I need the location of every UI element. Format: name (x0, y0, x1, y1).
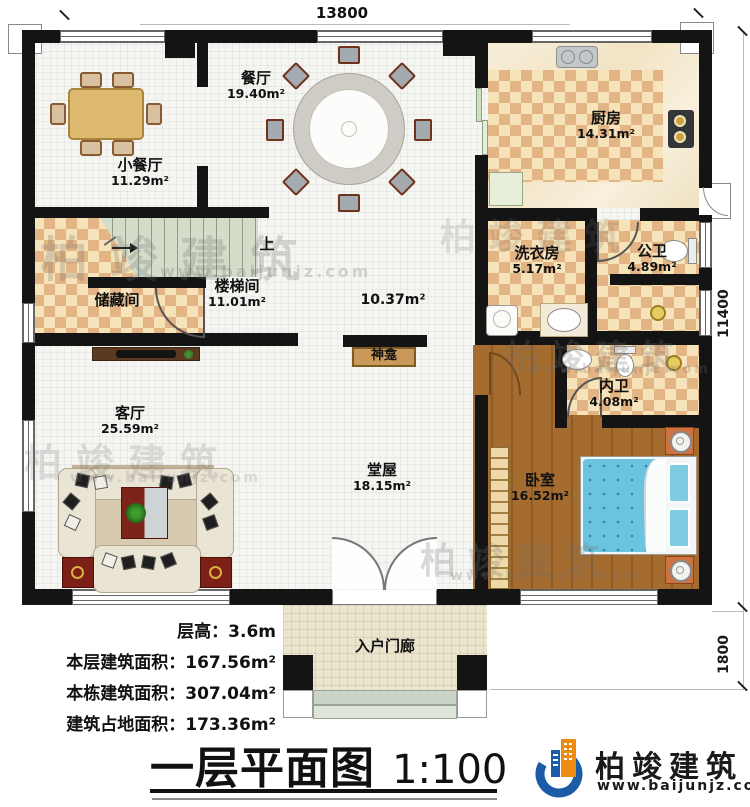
porch-column-base-right (457, 690, 487, 718)
window-left-storage (22, 303, 35, 343)
sliding-door-kitchen-b (482, 120, 488, 155)
dimension-ext-line (490, 689, 744, 690)
wall-dining-small-bottom (32, 207, 269, 218)
dimension-ext-line (712, 611, 744, 612)
wall-public-bath-inner (610, 274, 699, 285)
plan-title: 一层平面图 1:100 (150, 732, 507, 796)
wall-storage-bottom (22, 333, 298, 346)
dimension-top: 13800 (310, 4, 374, 22)
room-label-dining: 餐厅 19.40m² (227, 70, 285, 101)
info-building-area: 本栋建筑面积：307.04m² (0, 679, 276, 710)
wall-kitchen-left-top (475, 43, 488, 88)
watermark-url: www.baijunjz.com (450, 568, 641, 584)
room-label-hallway: 10.37m² (360, 293, 425, 309)
info-block: 层高：3.6m 本层建筑面积：167.56m² 本栋建筑面积：307.04m² … (0, 617, 276, 741)
chair (338, 194, 360, 212)
room-label-storage: 储藏间 (94, 292, 139, 309)
washing-machine-drum (493, 310, 511, 328)
shower-head (650, 305, 666, 321)
sliding-door-kitchen-a (476, 88, 482, 122)
window-top-dining (317, 30, 443, 43)
wall-inner-bath-bottom-stub (555, 415, 567, 428)
porch-step-2 (313, 705, 457, 719)
plant (126, 503, 146, 523)
chair (50, 103, 66, 125)
dimension-porch-line (743, 610, 744, 690)
window-right-bath-2 (699, 290, 712, 336)
room-label-porch: 入户门廊 (355, 638, 415, 655)
brand-website: www.baijunjz.com (597, 778, 750, 794)
dimension-tick (59, 10, 70, 21)
bed-blanket-fold (644, 459, 666, 552)
kitchen-sink-bowl (579, 50, 593, 64)
brand-logo-icon (533, 736, 591, 800)
stove-burner (674, 115, 686, 127)
dimension-top-line (140, 24, 570, 25)
room-label-hall: 堂屋 18.15m² (353, 462, 411, 493)
room-label-laundry: 洗衣房 5.17m² (512, 245, 561, 276)
chair (414, 119, 432, 141)
room-label-dining-small: 小餐厅 11.29m² (111, 157, 169, 188)
window-top-kitchen (532, 30, 652, 43)
pillow (668, 463, 690, 503)
plant-small (184, 350, 193, 359)
kitchen-rug (488, 70, 663, 182)
room-label-kitchen: 厨房 14.31m² (577, 110, 635, 141)
lamp (670, 431, 692, 453)
pillow (668, 508, 690, 548)
title-underline-thin (152, 798, 497, 800)
toilet-public (688, 238, 697, 264)
dining-small-table (68, 88, 144, 140)
chair (112, 140, 134, 156)
porch-column-left (283, 655, 313, 690)
laundry-sink (547, 308, 581, 332)
stove-burner (674, 131, 686, 143)
dimension-right: 11400 (716, 268, 732, 338)
watermark-url: www.baijunjz.com (530, 362, 711, 377)
title-underline (150, 789, 497, 793)
chair (146, 103, 162, 125)
chair (80, 72, 102, 88)
dimension-porch: 1800 (716, 630, 732, 674)
porch-column-right (457, 655, 487, 690)
shrine-wall (343, 335, 427, 347)
cushion (121, 555, 136, 570)
stairs-up-label: 上 (259, 236, 274, 253)
chair (338, 46, 360, 64)
lamp (670, 560, 692, 582)
wall-inner-bath-bottom (602, 415, 712, 428)
entrance-sill (332, 589, 437, 605)
wall-dining-divider-upper (197, 43, 208, 87)
info-floor-area: 本层建筑面积：167.56m² (0, 648, 276, 679)
dimension-tick (693, 8, 704, 19)
dining-round-center (341, 121, 357, 137)
window-top-dining-small (60, 30, 165, 43)
chair (112, 72, 134, 88)
cushion (141, 555, 156, 570)
porch-step-1 (313, 690, 457, 705)
watermark-url: www.baijunjz.com (70, 470, 261, 486)
dimension-right-line (743, 32, 744, 610)
room-label-bedroom: 卧室 16.52m² (511, 472, 569, 503)
end-table-emblem (71, 566, 84, 579)
chair (80, 140, 102, 156)
wall-dining-divider-lower (197, 166, 208, 211)
info-floor-height: 层高：3.6m (0, 617, 276, 648)
room-label-living: 客厅 25.59m² (101, 405, 159, 436)
room-label-public-bath: 公卫 4.89m² (627, 243, 676, 274)
pillar-top (165, 43, 195, 58)
door-storage-leaf (203, 288, 205, 338)
brand-logo: 柏竣建筑 www.baijunjz.com (533, 736, 743, 802)
kitchen-sink-bowl (561, 50, 575, 64)
door-bedroom-leaf (489, 352, 491, 395)
room-label-stairwell: 楼梯间 11.01m² (208, 278, 266, 309)
room-label-inner-bath: 内卫 4.08m² (589, 378, 638, 409)
window-right-bath-1 (699, 222, 712, 268)
window-bottom-bedroom (520, 589, 658, 605)
plan-title-text: 一层平面图 (150, 743, 375, 794)
fridge (489, 172, 523, 206)
porch-column-base-left (283, 690, 313, 718)
shrine-label: 神龛 (371, 349, 397, 364)
plan-title-scale: 1:100 (392, 747, 507, 793)
end-table-emblem (209, 566, 222, 579)
floor-plan-page: 柏竣建筑 www.baijunjz.com 柏竣建筑 柏竣建筑 www.baij… (0, 0, 750, 807)
chair (266, 119, 284, 141)
tv (116, 350, 176, 358)
